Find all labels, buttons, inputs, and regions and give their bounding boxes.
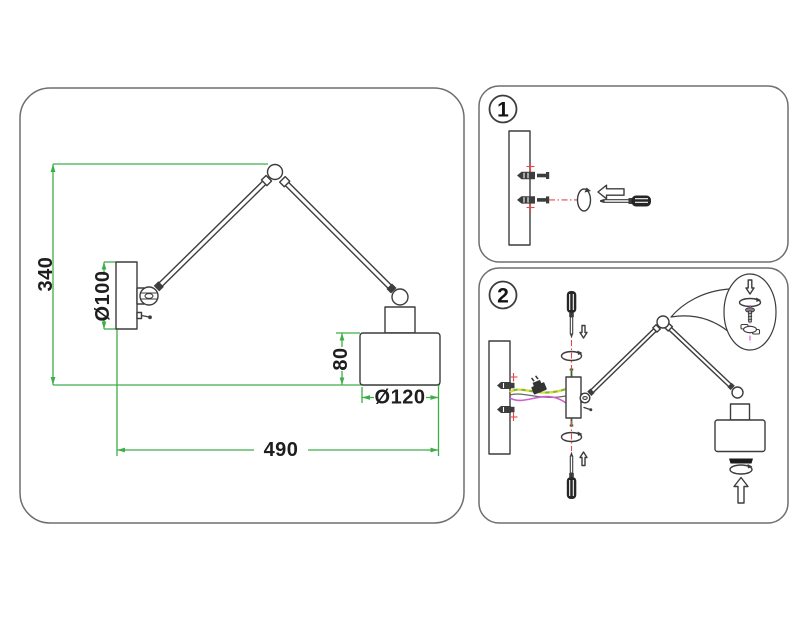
main-panel-border xyxy=(20,88,464,523)
dimension-label-reach: 490 xyxy=(264,439,299,461)
shade-ball-joint xyxy=(392,289,408,305)
step2-panel: 2 xyxy=(479,268,788,523)
lamp-shade xyxy=(715,420,765,452)
wall-strip-icon xyxy=(489,341,510,454)
wall-plate xyxy=(116,262,137,329)
wall-strip-icon xyxy=(509,131,530,245)
shade-neck xyxy=(731,404,750,420)
diagram-canvas: 340 Ø100 80 Ø120 490 1 xyxy=(0,0,800,622)
lamp-shade xyxy=(360,333,440,385)
shade-neck xyxy=(385,307,415,333)
main-drawing-panel: 340 Ø100 80 Ø120 490 xyxy=(20,88,464,523)
shade-ball-joint xyxy=(732,387,743,398)
dimension-label-plate-diameter: Ø100 xyxy=(92,271,114,322)
dimension-label-shade-diameter: Ø120 xyxy=(375,387,426,409)
step1-number: 1 xyxy=(497,99,509,122)
step2-number: 2 xyxy=(497,285,509,308)
elbow-joint xyxy=(657,316,669,328)
step1-panel: 1 xyxy=(479,86,788,262)
dimension-label-shade-height: 80 xyxy=(330,347,352,370)
instruction-sheet: 340 Ø100 80 Ø120 490 1 xyxy=(0,0,800,622)
diffuser-disc xyxy=(729,459,753,464)
dimension-label-height: 340 xyxy=(35,257,57,292)
swivel-joint xyxy=(140,287,158,305)
elbow-joint xyxy=(268,165,283,180)
